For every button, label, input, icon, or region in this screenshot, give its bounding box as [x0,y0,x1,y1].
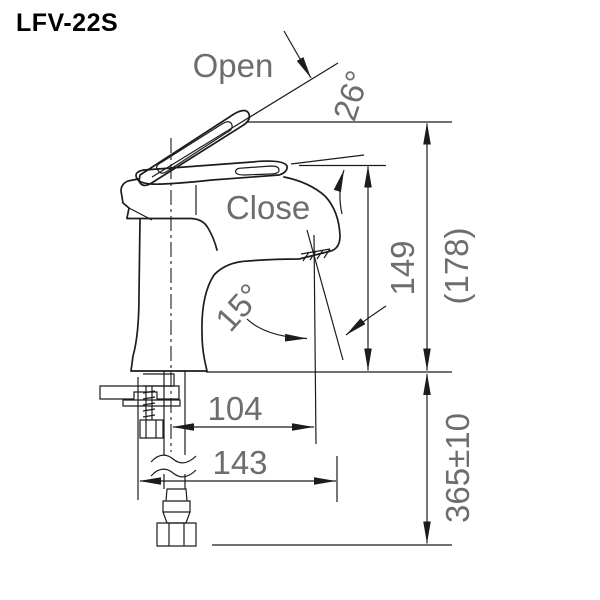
open-label: Open [193,47,274,84]
supply-hose [164,371,185,489]
close-label: Close [226,189,310,226]
spout-reach-value: 104 [207,390,262,427]
open-angle-value: 26° [326,66,377,125]
faucet-spec-drawing: LFV-22S Open Close 26° 15° 149 (178) 365… [0,0,600,600]
mounting-bracket [100,386,179,399]
spout-angle-arrow-left [247,319,307,339]
total-reach-value: 143 [212,444,267,481]
hose-length-value: 365±10 [439,413,476,523]
stream-vertical-line [314,235,316,444]
open-leader [284,31,311,78]
model-number: LFV-22S [16,9,118,37]
open-height-value: (178) [438,227,475,304]
hose-collar [163,489,190,523]
faucet-diagram-svg: LFV-22S Open Close 26° 15° 149 (178) 365… [0,0,600,600]
spout-angle-arrow-right [346,306,386,335]
mounting-shank [143,374,174,386]
mounting-hardware [100,371,196,546]
threaded-rod [143,386,155,420]
spout-angle-value: 15° [208,276,269,338]
lift-direction-arrow [340,170,344,214]
mounting-nut [140,420,163,438]
hose-break-symbol [151,455,196,477]
handle-base-outline [121,179,138,218]
spout-height-value: 149 [384,240,421,295]
close-top-ext-line [291,155,364,164]
handle-closed-slot [236,166,279,175]
hose-hex-fitting [157,523,196,546]
